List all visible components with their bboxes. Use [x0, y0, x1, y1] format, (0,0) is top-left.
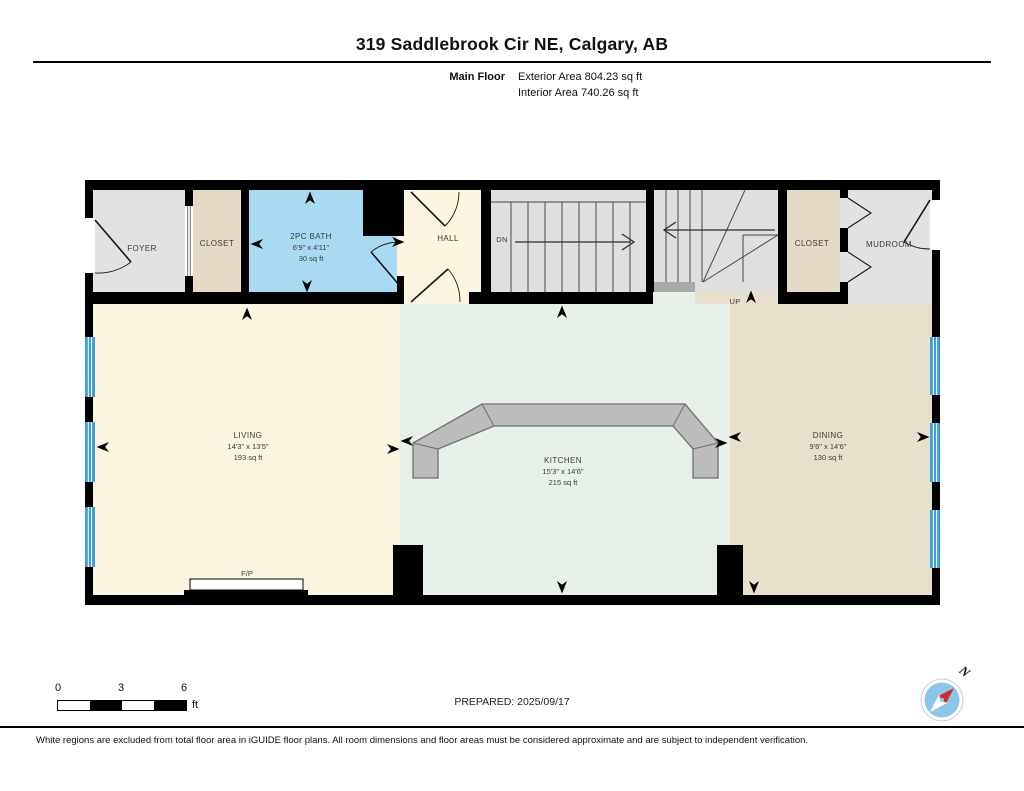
window-left-1 — [85, 337, 95, 397]
living-dims: 14'3" x 13'5" — [227, 442, 268, 451]
disclaimer-text: White regions are excluded from total fl… — [36, 735, 996, 746]
floor-summary: Main Floor Exterior Area 804.23 sq ft In… — [0, 71, 1024, 103]
mudroom-door-gap — [930, 200, 940, 250]
dining-area: 130 sq ft — [814, 453, 844, 462]
closet-right-opening-top — [840, 198, 848, 228]
living-area: 193 sq ft — [234, 453, 264, 462]
kitchen-dining-wall-stub — [717, 545, 743, 595]
scale-tick-3: 3 — [118, 682, 124, 694]
stairs-down-floor — [491, 190, 646, 292]
closet-left-label: CLOSET — [200, 239, 234, 248]
living-kitchen-wall-stub — [393, 545, 423, 595]
kitchen-label: KITCHEN — [544, 456, 582, 465]
foyer-floor — [93, 190, 185, 292]
living-label: LIVING — [234, 431, 263, 440]
bath-wall-notch — [363, 190, 404, 236]
bath-label: 2PC BATH — [290, 232, 332, 241]
fireplace-label: F/P — [241, 569, 253, 578]
dining-dims: 9'6" x 14'6" — [810, 442, 847, 451]
stair-landing-strip — [654, 282, 695, 292]
dining-label: DINING — [813, 431, 843, 440]
closet-right-opening-bottom — [840, 252, 848, 282]
bath-dims: 6'9" x 4'11" — [293, 243, 330, 252]
bath-area: 30 sq ft — [299, 254, 325, 263]
stairs-down-label: DN — [496, 235, 507, 244]
compass-north-label: N — [956, 662, 974, 680]
window-left-2 — [85, 422, 95, 482]
entry-door-gap — [85, 218, 95, 273]
footer-divider — [0, 726, 1024, 728]
foyer-closet-sliding-door — [185, 206, 193, 276]
window-right-1 — [930, 337, 940, 395]
page-title: 319 Saddlebrook Cir NE, Calgary, AB — [0, 34, 1024, 55]
foyer-label: FOYER — [127, 244, 157, 253]
scale-tick-0: 0 — [55, 682, 61, 694]
kitchen-dims: 15'3" x 14'6" — [542, 467, 583, 476]
interior-area: Interior Area 740.26 sq ft — [518, 87, 1024, 99]
exterior-area: Exterior Area 804.23 sq ft — [518, 71, 1024, 83]
hall-label: HALL — [437, 234, 459, 243]
floor-plan-page: 319 Saddlebrook Cir NE, Calgary, AB Main… — [0, 0, 1024, 791]
window-right-3 — [930, 510, 940, 568]
scale-tick-6: 6 — [181, 682, 187, 694]
stairs-up-label: UP — [729, 297, 740, 306]
kitchen-floor — [400, 304, 730, 595]
window-right-2 — [930, 423, 940, 482]
kitchen-area: 215 sq ft — [549, 478, 579, 487]
floor-plan-drawing: F/P FOYER CLOSET 2PC BATH 6'9" x 4'11" — [85, 180, 940, 605]
compass-icon: N — [908, 662, 982, 724]
mudroom-label: MUDROOM — [866, 240, 912, 249]
floor-name: Main Floor — [0, 71, 512, 103]
closet-right-label: CLOSET — [795, 239, 829, 248]
stairs-up-floor — [654, 190, 778, 292]
window-left-3 — [85, 507, 95, 567]
prepared-date: PREPARED: 2025/09/17 — [0, 696, 1024, 708]
stair-kitchen-opening — [653, 292, 695, 304]
room-floors — [93, 190, 932, 595]
header-divider — [33, 61, 991, 63]
